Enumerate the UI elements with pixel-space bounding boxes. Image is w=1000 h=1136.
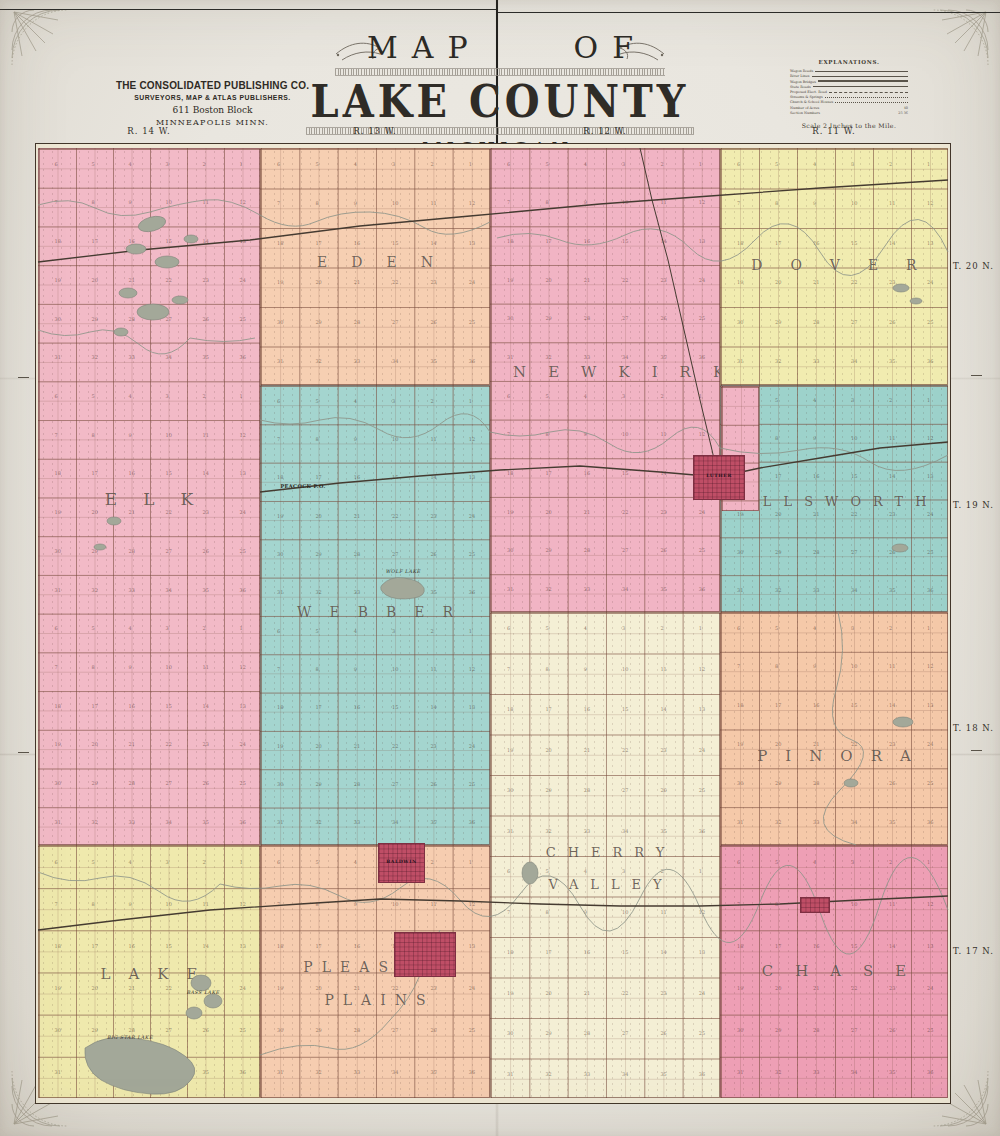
village-label-baldwin: BALDWIN: [386, 859, 416, 864]
village-plat-luther: LUTHER: [693, 455, 745, 500]
lake-label: BASS LAKE: [186, 990, 219, 995]
legend-row: Section Numbers25 36: [790, 110, 908, 115]
legend-row-sample: 25 36: [898, 111, 908, 115]
township-row-label: T. 19 N.: [953, 500, 994, 510]
explanations-legend: EXPLANATIONS. Wagon RoadsRiver LinesWago…: [790, 59, 908, 129]
village-label-luther: LUTHER: [706, 473, 732, 478]
range-label: R. 12 W.: [575, 126, 635, 136]
place-label: PEACOCK P.O.: [280, 483, 325, 489]
legend-row-label: Streams & Springs: [790, 95, 823, 99]
publisher-address: 611 Boston Block: [95, 105, 330, 115]
legend-row-label: Proposed Elect. Road: [790, 90, 827, 94]
legend-row-line: [818, 80, 908, 82]
corner-fan-top-left: [12, 10, 67, 65]
range-label: R. 11 W.: [804, 126, 864, 136]
township-row-label: T. 18 N.: [953, 723, 994, 733]
fold-line-top-right: [497, 12, 1000, 13]
publisher-subtitle: SURVEYORS, MAP & ATLAS PUBLISHERS.: [95, 94, 330, 101]
legend-row-line: [835, 102, 908, 103]
legend-row-label: Church & School Houses: [790, 100, 833, 104]
village-plat-baldwin: BALDWIN: [378, 843, 425, 883]
title-map-of: MAP OF: [300, 30, 700, 65]
explanations-rows: Wagon RoadsRiver LinesWagon BridgesState…: [790, 68, 908, 115]
legend-row-label: Wagon Bridges: [790, 80, 816, 84]
title-county: LAKE COUNTY: [300, 74, 700, 127]
township-row-labels: T. 20 N.T. 19 N.T. 18 N.T. 17 N.: [953, 0, 999, 1136]
lake-label: WOLF LAKE: [385, 569, 420, 574]
map-frame: 6543217891011121817161514131920212223243…: [35, 143, 951, 1104]
township-row-label: T. 17 N.: [953, 946, 994, 956]
legend-row-line: [815, 71, 908, 72]
map-sheet: THE CONSOLIDATED PUBLISHING CO. SURVEYOR…: [0, 0, 1000, 1136]
township-row-label: T. 20 N.: [953, 261, 994, 271]
legend-row-label: Wagon Roads: [790, 69, 813, 73]
range-label: R. 13 W.: [345, 126, 405, 136]
range-labels: R. 14 W.R. 13 W.R. 12 W.R. 11 W.: [0, 126, 1000, 137]
village-plat-baldwin-addition: [394, 932, 456, 977]
lake-label: BIG STAR LAKE: [107, 1035, 153, 1040]
legend-row-label: Section Numbers: [790, 111, 820, 115]
fold-mark: [18, 752, 29, 753]
range-label: R. 14 W.: [119, 126, 179, 136]
legend-row-label: State Roads: [790, 85, 811, 89]
publisher-name: THE CONSOLIDATED PUBLISHING CO.: [95, 80, 330, 91]
village-plat-chase-village: [800, 897, 830, 913]
legend-row-sample: 40: [904, 106, 908, 110]
legend-row-line: [813, 86, 908, 87]
legend-row-line: [829, 92, 908, 93]
legend-row-label: Number of Acres: [790, 106, 819, 110]
legend-row-label: River Lines: [790, 74, 810, 78]
title-word-map: MAP: [353, 30, 482, 65]
legend-row-line: [812, 76, 908, 77]
title-word-of: OF: [560, 30, 647, 65]
fold-line-top-left: [0, 9, 497, 10]
map-label-layer: LUTHERBALDWINPEACOCK P.O.WOLF LAKEBASS L…: [36, 144, 950, 1103]
legend-row-line: [825, 97, 908, 98]
publisher-imprint: THE CONSOLIDATED PUBLISHING CO. SURVEYOR…: [95, 80, 330, 127]
explanations-heading: EXPLANATIONS.: [790, 59, 908, 65]
fold-mark: [18, 377, 29, 378]
